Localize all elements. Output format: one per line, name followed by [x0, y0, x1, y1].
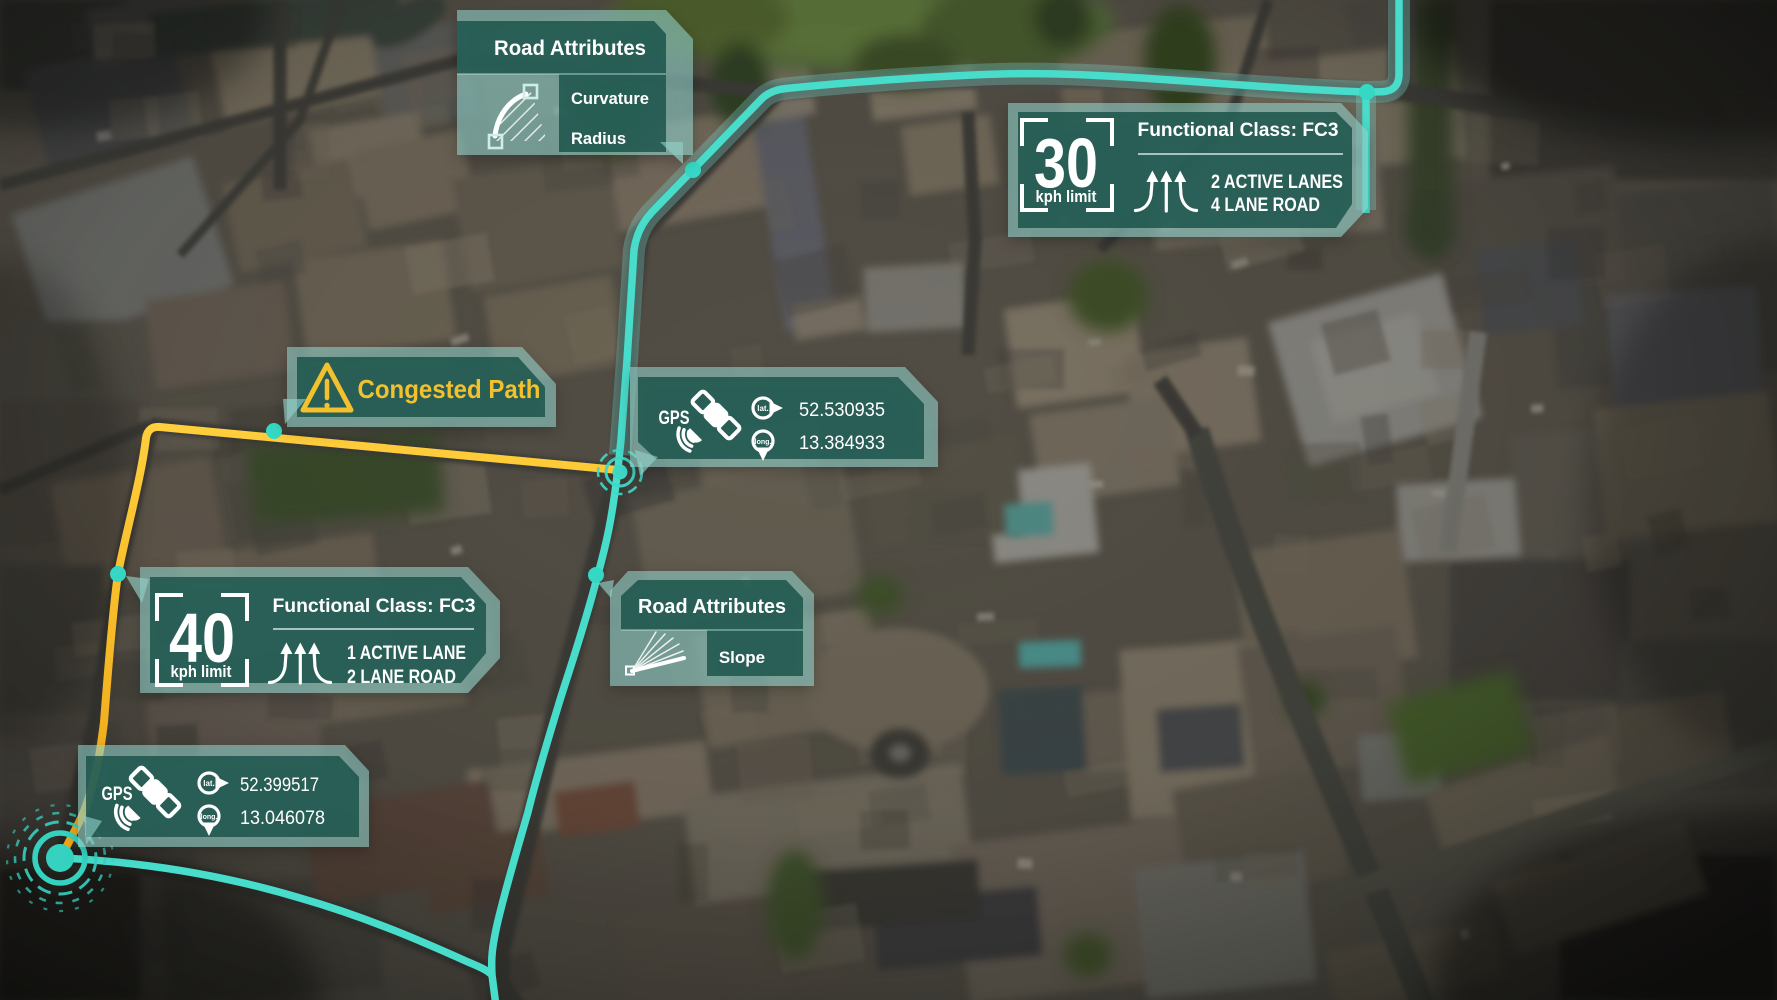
- svg-text:long.: long.: [201, 814, 218, 821]
- svg-text:kph limit: kph limit: [1036, 188, 1097, 206]
- svg-text:Road Attributes: Road Attributes: [638, 596, 786, 618]
- svg-text:GPS: GPS: [659, 408, 690, 429]
- svg-text:Functional Class: FC3: Functional Class: FC3: [1138, 120, 1339, 141]
- svg-text:lat.: lat.: [757, 404, 769, 413]
- svg-text:Slope: Slope: [719, 648, 765, 667]
- svg-text:Curvature: Curvature: [571, 90, 649, 108]
- svg-text:52.399517: 52.399517: [240, 774, 319, 796]
- svg-text:1 ACTIVE LANE: 1 ACTIVE LANE: [347, 643, 466, 664]
- svg-text:kph limit: kph limit: [171, 663, 232, 681]
- svg-text:Road Attributes: Road Attributes: [494, 36, 646, 60]
- svg-text:Radius: Radius: [571, 130, 626, 148]
- svg-text:52.530935: 52.530935: [799, 399, 885, 421]
- svg-text:Congested Path: Congested Path: [358, 374, 541, 404]
- svg-text:13.384933: 13.384933: [799, 432, 885, 454]
- svg-text:GPS: GPS: [102, 784, 133, 805]
- svg-text:13.046078: 13.046078: [240, 807, 325, 829]
- svg-text:4 LANE ROAD: 4 LANE ROAD: [1211, 195, 1320, 216]
- svg-text:Functional Class: FC3: Functional Class: FC3: [273, 596, 476, 617]
- svg-text:lat.: lat.: [203, 779, 215, 788]
- svg-text:2 LANE ROAD: 2 LANE ROAD: [347, 667, 456, 688]
- svg-text:2 ACTIVE LANES: 2 ACTIVE LANES: [1211, 172, 1343, 193]
- svg-text:long.: long.: [755, 439, 772, 446]
